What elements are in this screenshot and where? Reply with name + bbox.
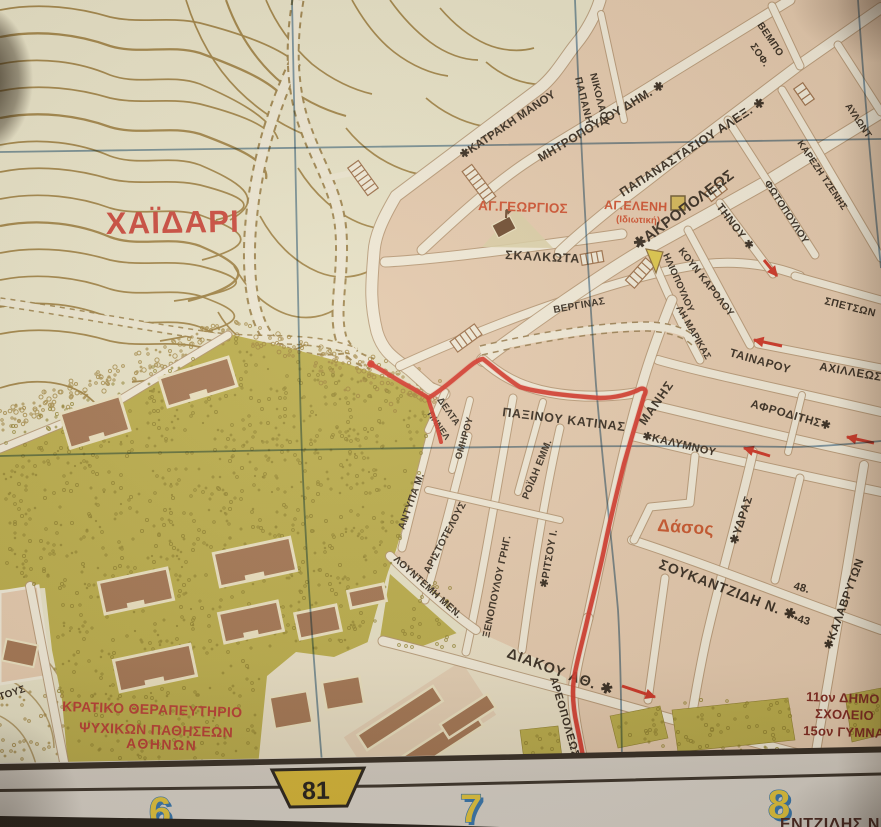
svg-text:ΑΘΗΝΩΝ: ΑΘΗΝΩΝ: [126, 735, 198, 753]
svg-text:Δάσος: Δάσος: [657, 515, 715, 539]
svg-text:ΑΓ.ΓΕΩΡΓΙΟΣ: ΑΓ.ΓΕΩΡΓΙΟΣ: [478, 198, 568, 216]
svg-text:7: 7: [460, 787, 482, 827]
svg-text:11ον ΔΗΜΟ: 11ον ΔΗΜΟ: [806, 689, 880, 707]
svg-text:81: 81: [302, 777, 330, 805]
svg-text:ΑΓ.ΕΛΕΝΗ: ΑΓ.ΕΛΕΝΗ: [604, 198, 668, 214]
svg-text:ΣΧΟΛΕΙΟ: ΣΧΟΛΕΙΟ: [815, 706, 874, 723]
svg-text:ΧΑΪΔΑΡΙ: ΧΑΪΔΑΡΙ: [106, 204, 241, 241]
svg-text:15ον ΓΥΜΝΑ: 15ον ΓΥΜΝΑ: [803, 723, 881, 741]
svg-text:ΕΝΤΖΙΔΗΣ ΝΙΚ: ΕΝΤΖΙΔΗΣ ΝΙΚ: [780, 816, 881, 827]
